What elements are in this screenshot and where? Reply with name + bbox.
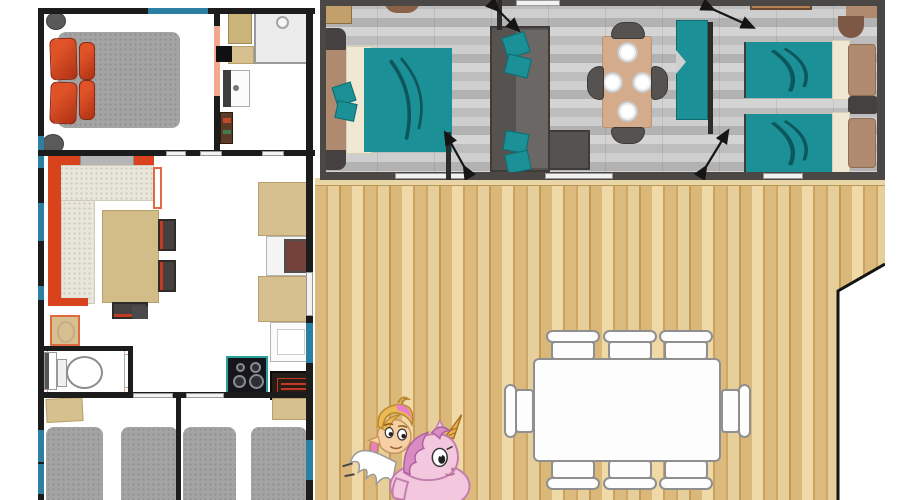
wc-basin	[44, 352, 57, 390]
bathroom-cabinet	[228, 12, 252, 44]
nightstand	[45, 397, 83, 423]
floor-plan	[0, 0, 900, 500]
sofa-cushions	[61, 200, 95, 304]
sofa-cushions	[58, 165, 154, 201]
wc-wall	[128, 346, 133, 398]
door-swing-arrows	[320, 0, 885, 180]
window	[306, 440, 313, 480]
terrace-chair-back	[659, 477, 713, 490]
door-opening	[186, 393, 224, 398]
round-stool	[46, 12, 66, 30]
chair	[158, 219, 176, 251]
terrace-table	[533, 358, 721, 462]
sink-vanity	[223, 70, 231, 107]
terrace-chair-back	[546, 477, 600, 490]
wc-wall	[44, 346, 132, 351]
red-pillow	[49, 38, 77, 81]
door-opening	[200, 151, 222, 156]
single-bed-mattress	[46, 427, 103, 500]
window	[38, 464, 44, 494]
shower-drain	[276, 16, 289, 29]
vanity-cabinet	[50, 315, 80, 346]
partition-wall	[176, 398, 181, 500]
window	[148, 8, 208, 14]
door-opening	[306, 272, 313, 316]
kitchen-counter	[258, 182, 312, 236]
living-table	[102, 210, 159, 303]
wall-cabinet	[132, 306, 148, 319]
red-pillow	[49, 82, 77, 125]
corner-sofa-end	[48, 298, 88, 306]
wall-block	[216, 46, 232, 62]
wall-right	[306, 8, 313, 500]
cooking-hob	[226, 356, 268, 396]
terrace-chair-seat	[515, 389, 534, 433]
single-bed-mattress	[251, 427, 307, 500]
single-bed-mattress	[121, 427, 178, 500]
window	[38, 286, 44, 300]
tall-cabinet	[220, 112, 233, 144]
faucet	[233, 85, 239, 91]
wall-left	[38, 8, 44, 500]
window	[306, 323, 313, 363]
door-opening	[133, 393, 173, 398]
single-bed-mattress	[183, 427, 236, 500]
nightstand	[272, 398, 310, 420]
window	[38, 430, 44, 462]
radiator	[153, 167, 162, 209]
chair	[158, 260, 176, 292]
door-opening	[262, 151, 284, 156]
mascot-fairy-unicorn	[338, 381, 483, 500]
toilet-bowl	[66, 356, 103, 389]
kitchen-counter	[258, 276, 312, 322]
red-pillow	[79, 80, 95, 120]
terrace-chair-back	[603, 477, 657, 490]
door-opening	[166, 151, 186, 156]
partition-wall	[38, 392, 312, 398]
red-pillow	[79, 42, 95, 80]
window	[38, 203, 44, 241]
corner-sofa-back-left	[48, 152, 61, 306]
terrace-chair-seat	[721, 389, 740, 433]
